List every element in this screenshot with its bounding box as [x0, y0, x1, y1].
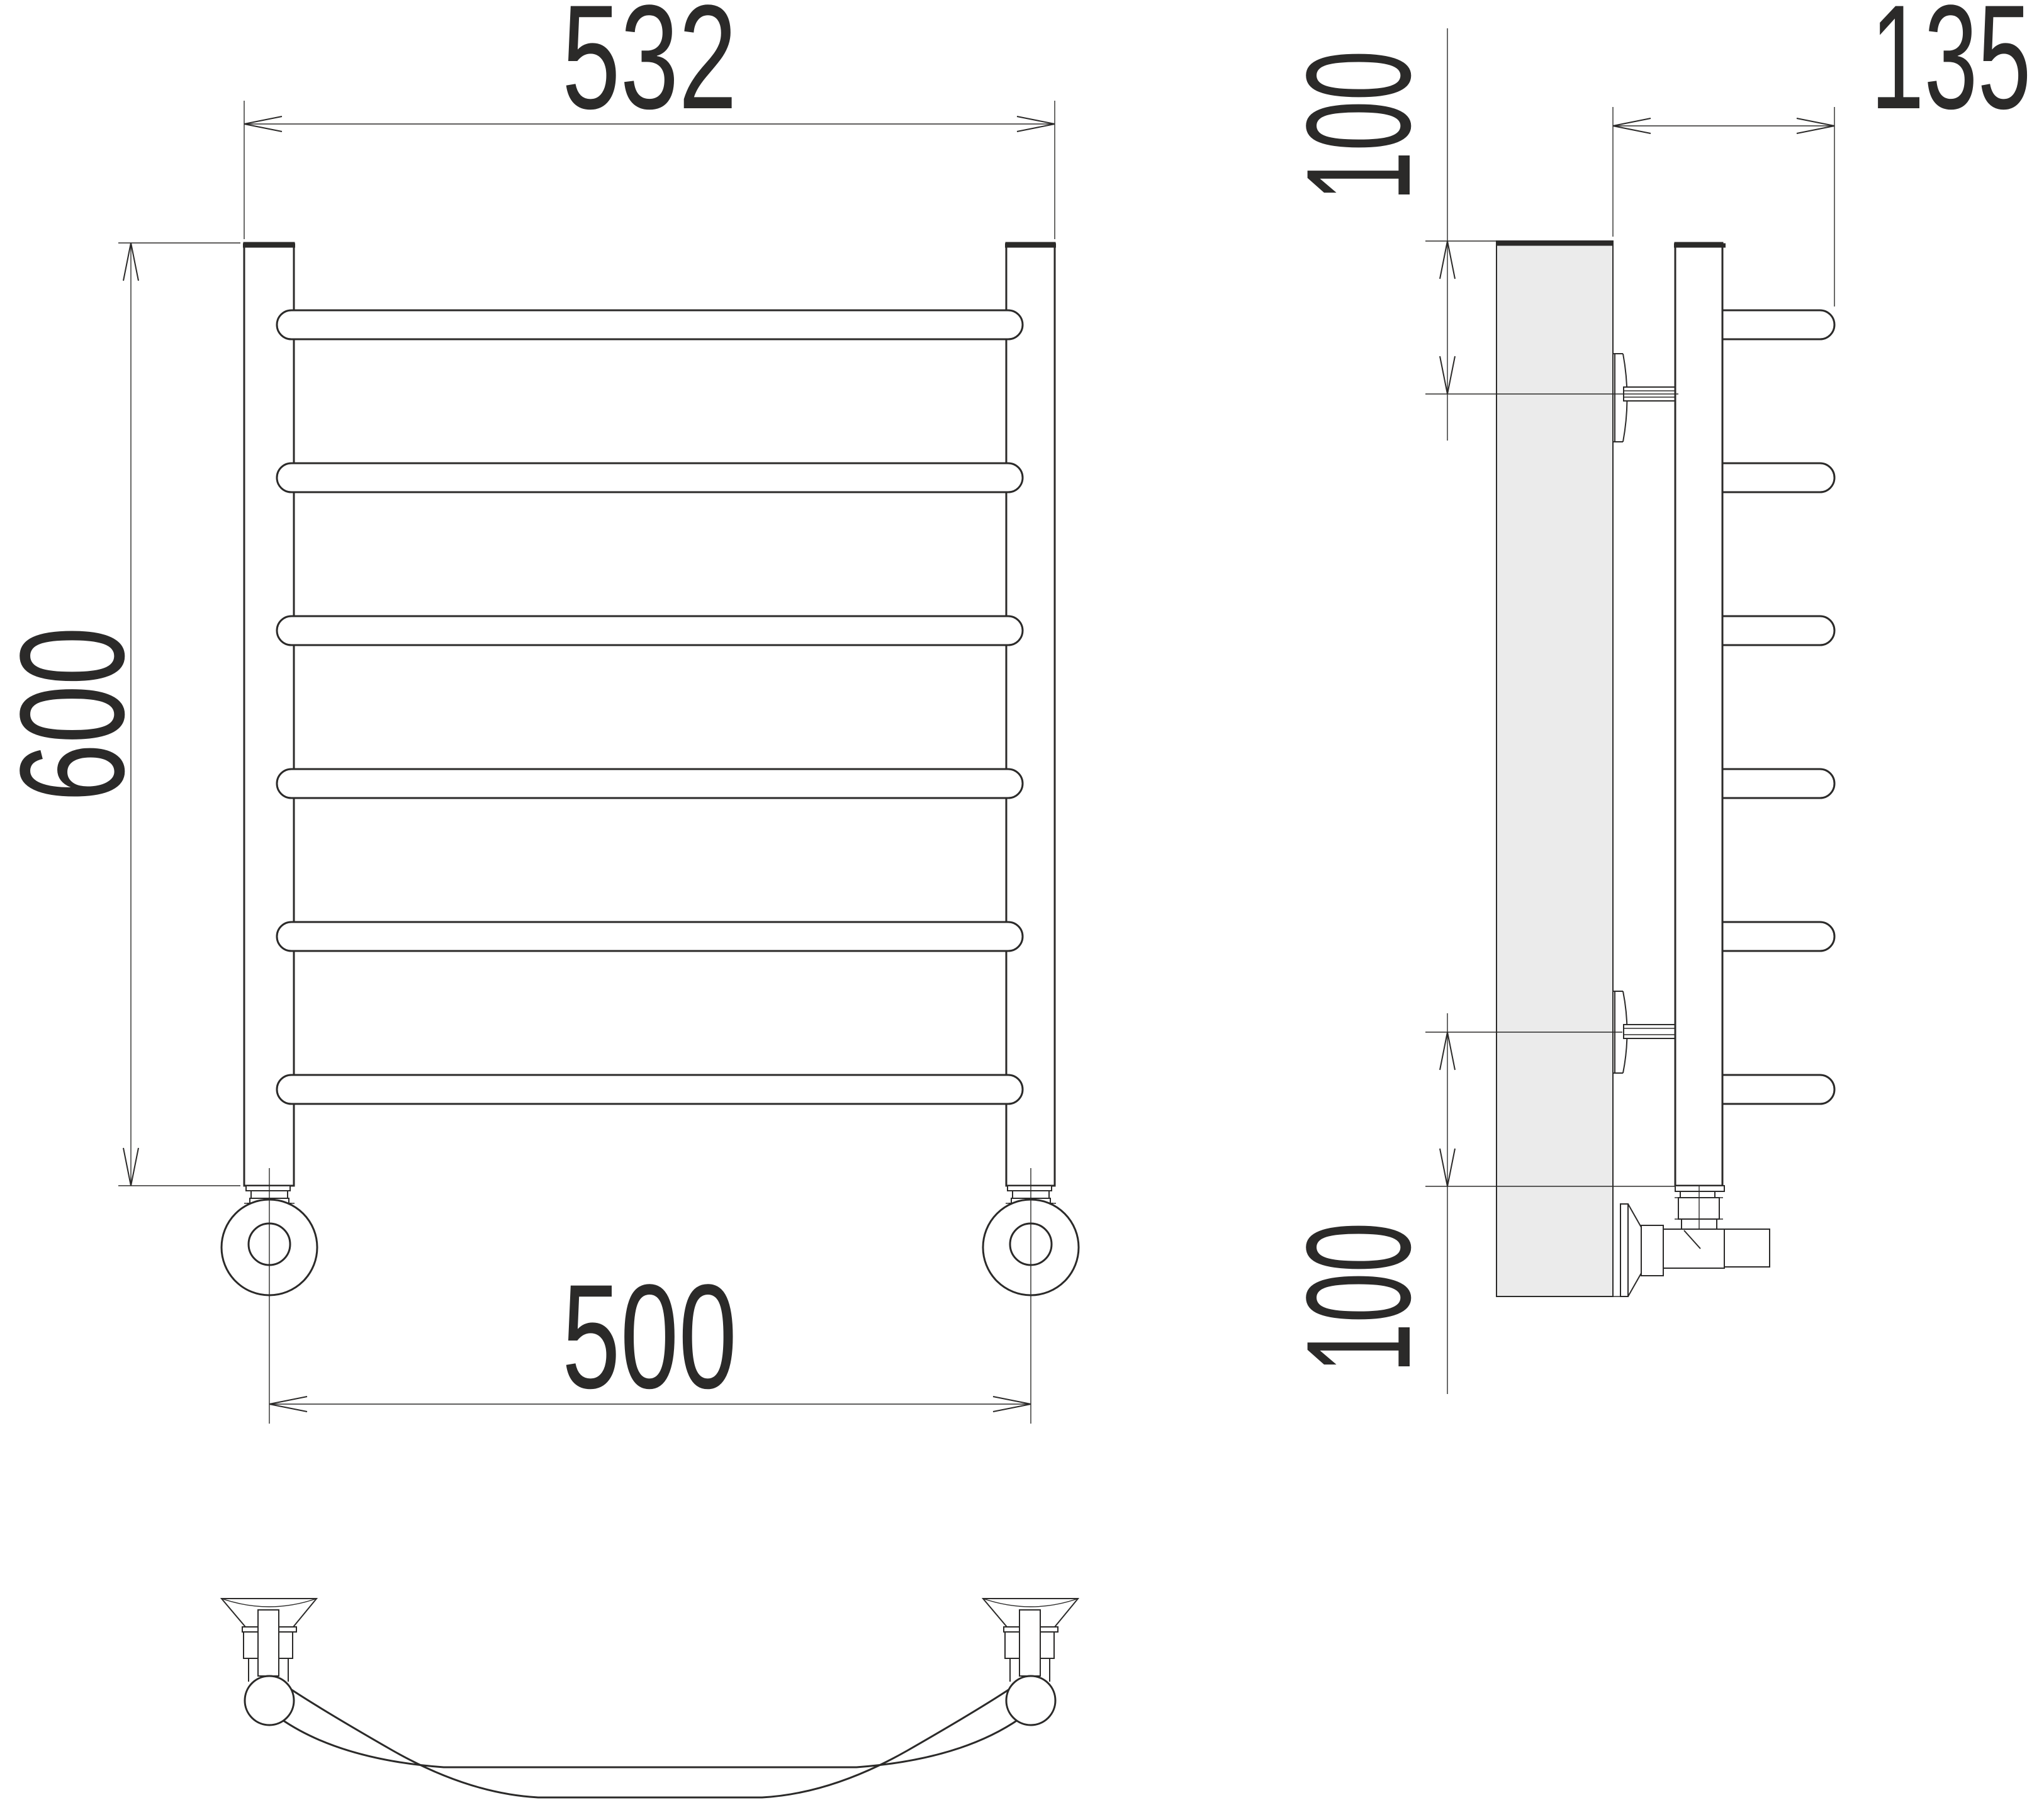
dim-overall-height-label: 600 [0, 627, 155, 802]
top-left-post-section [245, 1676, 294, 1725]
wall-escutcheon-plate [1620, 1204, 1628, 1296]
side-rung-2 [1722, 463, 1834, 492]
technical-drawing-canvas: 532 600 500 [0, 0, 2044, 1805]
top-right-post-section [1006, 1676, 1055, 1725]
dim-connection-spacing-label: 500 [562, 1254, 737, 1420]
side-rung-1 [1722, 310, 1834, 339]
top-right-mount [983, 1599, 1078, 1725]
dim-connection-spacing: 500 [269, 1254, 1031, 1420]
drawing-page: 532 600 500 [0, 0, 2044, 1805]
dim-overall-width-label: 532 [562, 0, 737, 140]
side-post [1675, 243, 1722, 1186]
top-right-stem [1019, 1610, 1040, 1676]
side-rung-5 [1722, 922, 1834, 951]
front-left-valve [222, 1168, 317, 1424]
side-rung-3 [1722, 616, 1834, 645]
dim-overall-width: 532 [244, 0, 1055, 239]
rung-3 [277, 616, 1023, 645]
valve-body [1663, 1229, 1724, 1268]
rung-4 [277, 769, 1023, 798]
front-left-post [244, 243, 294, 1186]
side-view: 135 100 100 [1276, 0, 2031, 1394]
dim-top-bracket-offset: 100 [1276, 28, 1678, 441]
upper-bracket [1613, 354, 1675, 442]
top-left-mount [222, 1599, 317, 1725]
side-rungs [1722, 310, 1834, 1104]
front-view: 532 600 500 [0, 0, 1079, 1424]
side-rung-6 [1722, 1075, 1834, 1104]
rung-2 [277, 463, 1023, 492]
dim-bottom-bracket-offset-label: 100 [1276, 1222, 1442, 1373]
front-right-valve [983, 1168, 1079, 1424]
rung-5 [277, 922, 1023, 951]
top-view [222, 1599, 1078, 1797]
side-valve-assembly [1620, 1186, 1770, 1296]
wall-section [1496, 241, 1613, 1296]
rung-1 [277, 310, 1023, 339]
top-rung-inner-edge [281, 1719, 1019, 1767]
top-left-stem [258, 1610, 279, 1676]
front-right-post [1006, 243, 1055, 1186]
rung-6 [277, 1075, 1023, 1104]
valve-union-nut [1641, 1225, 1663, 1276]
dim-top-bracket-offset-label: 100 [1276, 50, 1442, 201]
valve-outlet [1724, 1229, 1770, 1267]
dim-depth-label: 135 [1871, 0, 2031, 140]
top-rung-outer-edge [289, 1688, 1011, 1797]
dim-overall-height: 600 [0, 243, 240, 1186]
front-rungs [277, 310, 1023, 1104]
side-rung-4 [1722, 769, 1834, 798]
